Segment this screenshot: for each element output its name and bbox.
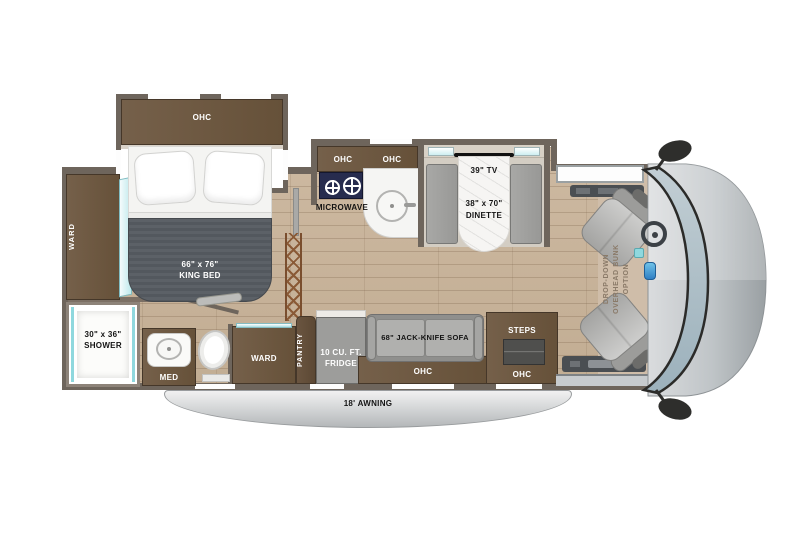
kitchen-ohc-right-label: OHC (367, 154, 417, 165)
dinette-window (428, 147, 454, 156)
window-slit (221, 94, 271, 99)
bedroom-wardrobe: WARD (66, 174, 120, 300)
window-slit (283, 150, 288, 180)
hall-wardrobe-label: WARD (233, 353, 295, 364)
toilet-bowl (195, 328, 233, 373)
window-slit (148, 94, 200, 99)
pillow (202, 150, 265, 206)
pantry-label: PANTRY (297, 317, 315, 383)
hall-wardrobe: WARD (232, 326, 296, 384)
dinette-size-label: 38" x 70" (434, 198, 534, 209)
shower-name-label: SHOWER (69, 340, 137, 351)
awning-label: 18' AWNING (165, 398, 571, 409)
bed-name-label: KING BED (129, 270, 271, 281)
steps-label: STEPS (493, 325, 551, 336)
jack-knife-sofa: 68" JACK-KNIFE SOFA (366, 314, 484, 362)
bunk-line: OVERHEAD BUNK (612, 224, 622, 334)
toilet (194, 328, 236, 384)
window-slit (195, 384, 235, 389)
kitchen-ohc-left-label: OHC (318, 154, 368, 165)
med-cabinet-label: MED (143, 372, 195, 383)
cab-bottle (644, 262, 656, 280)
bedroom-ohc-label: OHC (122, 112, 282, 123)
bed-size-label: 66" x 76" (129, 259, 271, 270)
bed-blanket: 66" x 76" KING BED (128, 218, 272, 302)
bunk-line: DROP-DOWN (602, 224, 612, 334)
awning: 18' AWNING (164, 390, 572, 428)
dinette-slideout: 39" TV 38" x 70" DINETTE (418, 139, 550, 247)
sofa-ohc-label: OHC (359, 366, 487, 377)
pantry: PANTRY (296, 316, 316, 384)
tv-label: 39" TV (434, 165, 534, 176)
cab-front-graphic (628, 130, 788, 430)
wall-top-bedroom-left (62, 167, 120, 174)
shower-size-label: 30" x 36" (69, 329, 137, 340)
rv-floorplan: OHC WARD 66" x 76" KING BED 30" x 36" SH… (0, 0, 800, 545)
bedroom-ohc-cabinet: OHC (121, 99, 283, 145)
window-slit (496, 384, 542, 389)
cooktop (319, 172, 363, 199)
kitchen-faucet (404, 203, 416, 207)
hall-wardrobe-mirror (236, 323, 292, 328)
shower: 30" x 36" SHOWER (66, 302, 140, 387)
bedroom-wardrobe-label: WARD (67, 175, 119, 299)
window-slit-kitchen (370, 139, 412, 144)
dinette-name-label: DINETTE (434, 210, 534, 221)
window-slit (392, 384, 454, 389)
sofa-label: 68" JACK-KNIFE SOFA (368, 332, 482, 343)
microwave-label: MICROWAVE (300, 202, 384, 213)
dash-vent (576, 188, 590, 194)
toilet-base (202, 374, 230, 382)
burner-icon (325, 180, 340, 195)
steering-wheel-icon (641, 221, 667, 247)
burner-icon (343, 177, 361, 195)
entry-ohc-label: OHC (493, 369, 551, 380)
dinette-window (514, 147, 540, 156)
window-slit (310, 384, 344, 389)
king-bed: 66" x 76" KING BED (128, 146, 272, 302)
pillow (133, 150, 196, 206)
dash-vent (570, 361, 580, 367)
bath-vanity: MED (142, 328, 196, 386)
cab-console (634, 248, 644, 258)
entry-cabinet: STEPS OHC (486, 312, 558, 384)
entry-steps (503, 339, 545, 365)
bunk-ladder (285, 233, 302, 321)
bath-sink (156, 338, 182, 360)
steering-hub (652, 232, 658, 238)
support-pole (293, 188, 299, 236)
